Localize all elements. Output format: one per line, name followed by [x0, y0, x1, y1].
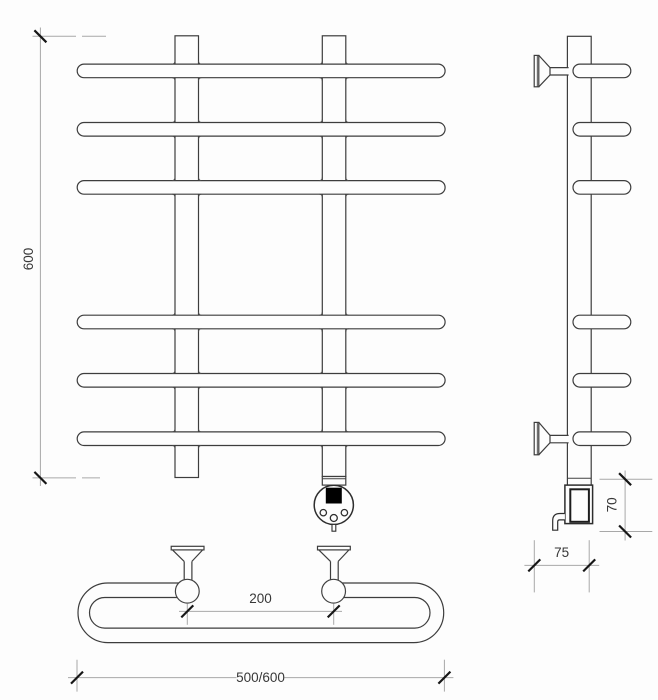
svg-text:70: 70: [605, 497, 620, 512]
svg-text:500/600: 500/600: [236, 670, 285, 685]
svg-text:600: 600: [21, 248, 36, 271]
svg-text:75: 75: [554, 545, 569, 560]
svg-text:200: 200: [249, 591, 272, 606]
